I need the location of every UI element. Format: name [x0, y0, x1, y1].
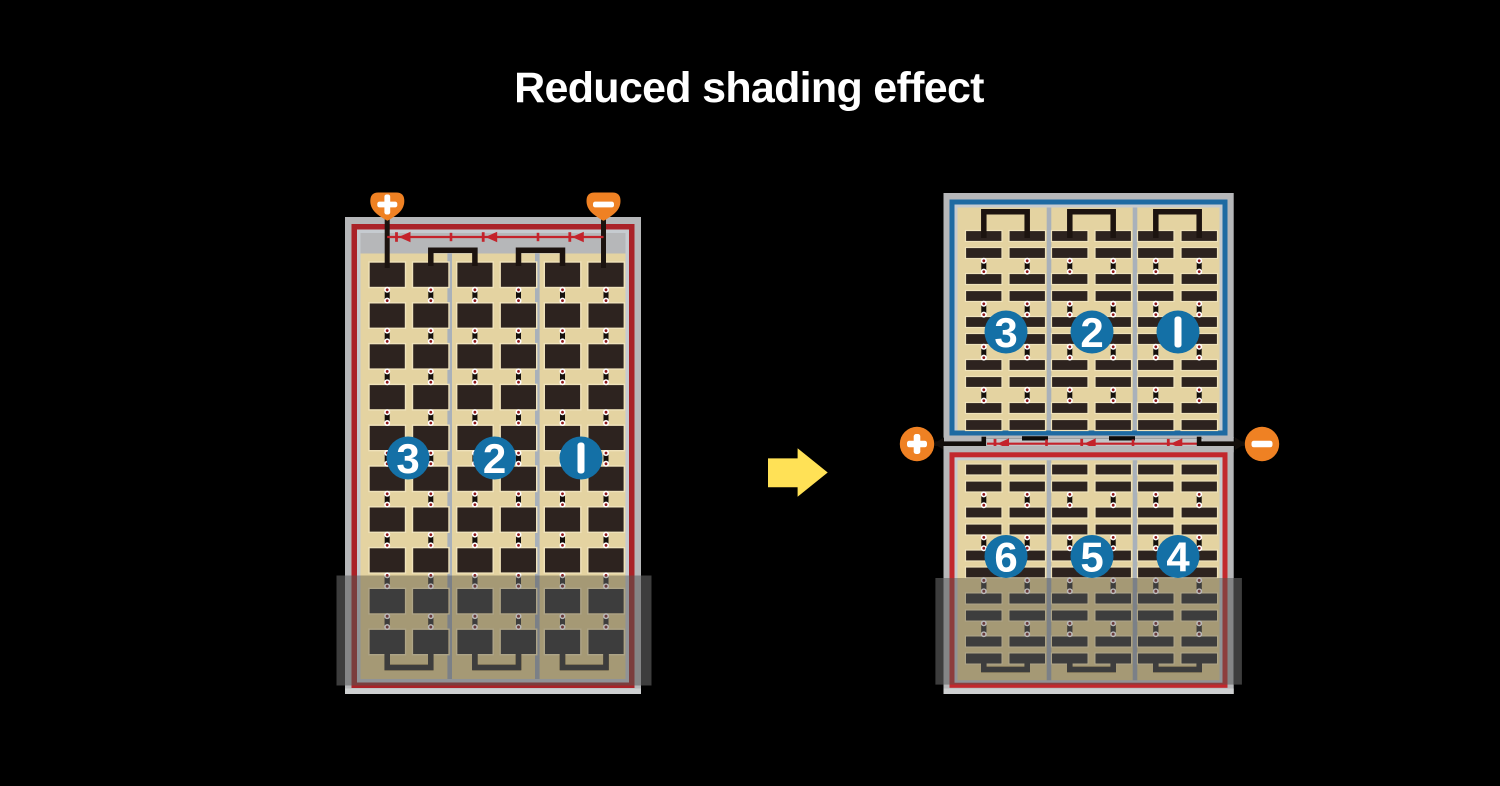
svg-text:Reduced shading effect: Reduced shading effect — [514, 64, 984, 112]
svg-text:5: 5 — [1080, 534, 1103, 581]
svg-text:4: 4 — [1166, 534, 1190, 581]
svg-text:3: 3 — [994, 309, 1017, 356]
svg-text:6: 6 — [994, 534, 1017, 581]
svg-text:2: 2 — [1080, 309, 1103, 356]
svg-text:3: 3 — [396, 435, 419, 482]
svg-text:2: 2 — [483, 435, 506, 482]
